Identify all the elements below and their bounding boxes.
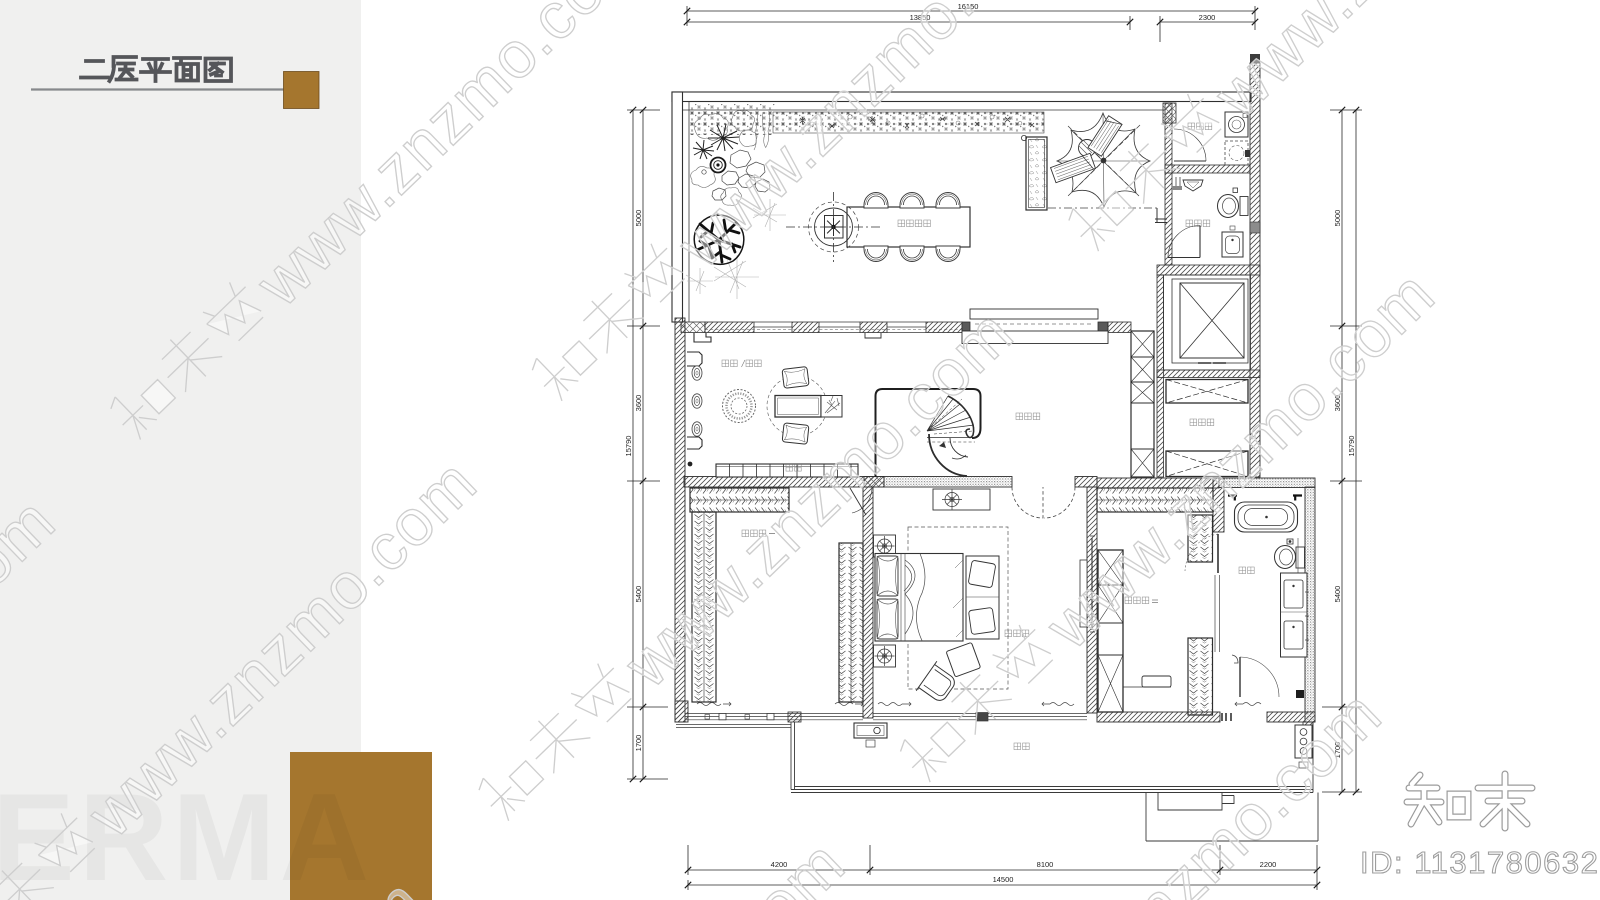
svg-text:5400: 5400 — [634, 586, 643, 603]
svg-text:15790: 15790 — [1347, 436, 1356, 457]
svg-text:5400: 5400 — [1333, 586, 1342, 603]
svg-text:5000: 5000 — [1333, 210, 1342, 227]
svg-text:ID: 1131780632: ID: 1131780632 — [1360, 845, 1599, 880]
svg-text:2300: 2300 — [1199, 13, 1216, 22]
svg-text:3600: 3600 — [634, 395, 643, 412]
svg-text:8100: 8100 — [1037, 860, 1054, 869]
svg-text:1700: 1700 — [634, 735, 643, 752]
svg-text:5000: 5000 — [634, 210, 643, 227]
svg-text:2200: 2200 — [1260, 860, 1277, 869]
svg-text:15790: 15790 — [624, 436, 633, 457]
svg-text:14500: 14500 — [993, 875, 1014, 884]
